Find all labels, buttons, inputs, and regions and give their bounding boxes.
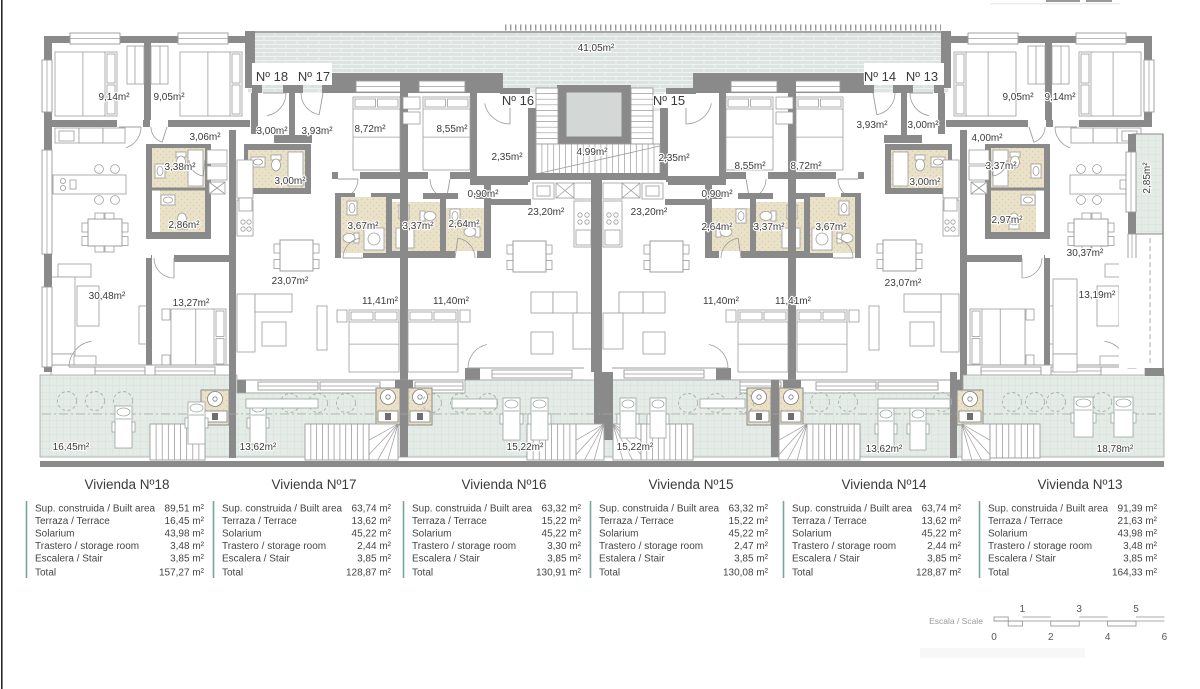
svg-text:11,41m²: 11,41m² [775,296,812,307]
svg-text:Solarium: Solarium [35,529,74,540]
svg-text:Terraza / Terrace: Terraza / Terrace [599,516,674,527]
svg-text:Trastero / storage room: Trastero / storage room [599,541,703,552]
svg-text:Total: Total [412,568,433,579]
svg-text:Sup. construida / Built area: Sup. construida / Built area [792,504,913,515]
svg-text:Sup. construida / Built area: Sup. construida / Built area [35,504,156,515]
svg-text:91,39 m²: 91,39 m² [1118,504,1158,515]
svg-text:9,05m²: 9,05m² [1002,92,1034,103]
svg-text:9,14m²: 9,14m² [98,92,130,103]
svg-text:3,85 m²: 3,85 m² [170,554,205,565]
svg-text:Vivienda Nº15: Vivienda Nº15 [649,477,734,492]
svg-text:15,22m²: 15,22m² [617,442,654,453]
svg-text:130,08 m²: 130,08 m² [723,568,769,579]
svg-text:2,47 m²: 2,47 m² [734,541,769,552]
svg-text:Solarium: Solarium [222,529,261,540]
svg-text:3,48 m²: 3,48 m² [1123,541,1158,552]
svg-text:8,55m²: 8,55m² [436,124,468,135]
svg-text:Total: Total [599,568,620,579]
svg-text:11,40m²: 11,40m² [703,296,740,307]
svg-text:13,27m²: 13,27m² [173,298,210,309]
svg-text:Sup. construida / Built area: Sup. construida / Built area [222,504,343,515]
svg-text:0,90m²: 0,90m² [467,189,499,200]
svg-text:Terraza / Terrace: Terraza / Terrace [35,516,110,527]
svg-text:15,22 m²: 15,22 m² [542,516,582,527]
svg-text:3,30 m²: 3,30 m² [547,541,582,552]
svg-text:Sup. construida / Built area: Sup. construida / Built area [412,504,533,515]
svg-text:3,38m²: 3,38m² [164,162,196,173]
svg-text:Solarium: Solarium [412,529,451,540]
svg-text:8,55m²: 8,55m² [734,161,766,172]
svg-text:45,22 m²: 45,22 m² [352,529,392,540]
svg-text:2,44 m²: 2,44 m² [357,541,392,552]
svg-text:Terraza / Terrace: Terraza / Terrace [222,516,297,527]
svg-text:13,62m²: 13,62m² [240,442,277,453]
svg-text:41,05m²: 41,05m² [578,43,615,54]
svg-text:Escalera / Stair: Escalera / Stair [792,554,860,565]
svg-text:23,07m²: 23,07m² [272,276,309,287]
svg-text:23,07m²: 23,07m² [885,278,922,289]
svg-text:128,87 m²: 128,87 m² [916,568,962,579]
svg-text:130,91 m²: 130,91 m² [536,568,582,579]
svg-text:21,63 m²: 21,63 m² [1118,516,1158,527]
svg-text:23,20m²: 23,20m² [631,207,668,218]
svg-text:9,14m²: 9,14m² [1044,92,1076,103]
svg-text:11,40m²: 11,40m² [433,296,470,307]
svg-text:Total: Total [222,568,243,579]
svg-text:3,00m²: 3,00m² [909,177,941,188]
svg-text:3: 3 [1076,604,1082,615]
svg-text:63,32 m²: 63,32 m² [729,504,769,515]
svg-text:0: 0 [991,632,997,643]
svg-text:Terraza / Terrace: Terraza / Terrace [988,516,1063,527]
svg-text:Trastero / storage room: Trastero / storage room [222,541,326,552]
svg-text:45,22 m²: 45,22 m² [542,529,582,540]
svg-text:3,85 m²: 3,85 m² [1123,554,1158,565]
svg-text:5: 5 [1133,604,1139,615]
svg-text:3,00m²: 3,00m² [907,120,939,131]
svg-text:8,72m²: 8,72m² [354,124,386,135]
svg-text:2,64m²: 2,64m² [448,219,480,230]
svg-text:45,22 m²: 45,22 m² [729,529,769,540]
svg-text:3,67m²: 3,67m² [815,222,847,233]
svg-text:3,37m²: 3,37m² [402,221,434,232]
svg-text:Solarium: Solarium [988,529,1027,540]
svg-text:13,62 m²: 13,62 m² [922,516,962,527]
svg-text:164,33 m²: 164,33 m² [1112,568,1158,579]
svg-text:3,85 m²: 3,85 m² [547,554,582,565]
svg-text:Nº 18: Nº 18 [256,69,288,84]
svg-text:Nº 13: Nº 13 [906,69,938,84]
svg-text:Vivienda Nº17: Vivienda Nº17 [272,477,357,492]
svg-text:Vivienda Nº13: Vivienda Nº13 [1038,477,1123,492]
svg-text:9,05m²: 9,05m² [153,92,185,103]
svg-text:Nº 15: Nº 15 [653,93,685,108]
svg-text:13,62 m²: 13,62 m² [352,516,392,527]
svg-text:16,45m²: 16,45m² [53,442,90,453]
svg-text:3,00m²: 3,00m² [274,176,306,187]
svg-text:Vivienda Nº16: Vivienda Nº16 [462,477,547,492]
svg-text:8,72m²: 8,72m² [790,161,822,172]
svg-text:Escalera / Stair: Escalera / Stair [35,554,103,565]
svg-text:13,19m²: 13,19m² [1079,290,1116,301]
svg-text:3,48 m²: 3,48 m² [170,541,205,552]
svg-text:15,22m²: 15,22m² [507,442,544,453]
svg-text:Sup. construida / Built area: Sup. construida / Built area [599,504,720,515]
svg-text:3,37m²: 3,37m² [753,222,785,233]
svg-text:Total: Total [35,568,56,579]
svg-text:Vivienda Nº14: Vivienda Nº14 [842,477,927,492]
svg-text:Terraza / Terrace: Terraza / Terrace [792,516,867,527]
svg-text:1: 1 [1020,604,1026,615]
svg-text:89,51 m²: 89,51 m² [165,504,205,515]
svg-text:Escalera / Stair: Escalera / Stair [988,554,1056,565]
svg-text:Nº 17: Nº 17 [298,69,330,84]
svg-text:63,74 m²: 63,74 m² [352,504,392,515]
svg-text:3,06m²: 3,06m² [189,132,221,143]
svg-text:2,86m²: 2,86m² [168,220,200,231]
svg-text:Escalera / Stair: Escalera / Stair [222,554,290,565]
svg-text:11,41m²: 11,41m² [362,296,399,307]
svg-text:Total: Total [988,568,1009,579]
svg-text:30,37m²: 30,37m² [1067,248,1104,259]
svg-text:Escalera / Stair: Escalera / Stair [412,554,480,565]
svg-text:Terraza / Terrace: Terraza / Terrace [412,516,487,527]
svg-text:4: 4 [1105,632,1111,643]
svg-text:2,64m²: 2,64m² [701,222,733,233]
svg-text:4,00m²: 4,00m² [971,133,1003,144]
svg-text:0,90m²: 0,90m² [701,189,733,200]
svg-text:128,87 m²: 128,87 m² [346,568,392,579]
svg-text:2,35m²: 2,35m² [658,153,690,164]
svg-text:23,20m²: 23,20m² [528,207,565,218]
svg-text:Trastero / storage room: Trastero / storage room [412,541,516,552]
svg-text:Sup. construida / Built area: Sup. construida / Built area [988,504,1109,515]
svg-text:Vivienda Nº18: Vivienda Nº18 [85,477,170,492]
svg-text:2: 2 [1048,632,1054,643]
svg-text:Total: Total [792,568,813,579]
svg-text:3,85 m²: 3,85 m² [927,554,962,565]
svg-text:3,67m²: 3,67m² [347,221,379,232]
svg-text:15,22 m²: 15,22 m² [729,516,769,527]
svg-text:Escala / Scale: Escala / Scale [929,616,983,626]
svg-text:30,48m²: 30,48m² [89,291,126,302]
svg-text:Trastero / storage room: Trastero / storage room [988,541,1092,552]
svg-text:2,44 m²: 2,44 m² [927,541,962,552]
svg-text:Solarium: Solarium [599,529,638,540]
svg-text:Estalera / Stair: Estalera / Stair [599,554,665,565]
svg-text:4,99m²: 4,99m² [576,147,608,158]
svg-text:6: 6 [1162,632,1168,643]
svg-text:43,98 m²: 43,98 m² [165,529,205,540]
svg-text:Trastero / storage room: Trastero / storage room [35,541,139,552]
svg-text:18,78m²: 18,78m² [1097,444,1134,455]
svg-text:157,27 m²: 157,27 m² [159,568,205,579]
svg-text:63,32 m²: 63,32 m² [542,504,582,515]
svg-text:3,93m²: 3,93m² [301,126,333,137]
svg-text:43,98 m²: 43,98 m² [1118,529,1158,540]
svg-text:3,93m²: 3,93m² [856,120,888,131]
svg-text:2,35m²: 2,35m² [491,152,523,163]
svg-text:16,45 m²: 16,45 m² [165,516,205,527]
svg-text:3,00m²: 3,00m² [256,126,288,137]
svg-text:3,37m²: 3,37m² [985,161,1017,172]
svg-text:63,74 m²: 63,74 m² [922,504,962,515]
svg-text:Nº 14: Nº 14 [864,69,896,84]
svg-text:Trastero / storage room: Trastero / storage room [792,541,896,552]
svg-text:2,85m²: 2,85m² [1142,162,1153,194]
svg-text:Solarium: Solarium [792,529,831,540]
svg-text:45,22 m²: 45,22 m² [922,529,962,540]
svg-text:2,97m²: 2,97m² [991,215,1023,226]
svg-text:3,85 m²: 3,85 m² [357,554,392,565]
svg-text:13,62m²: 13,62m² [866,444,903,455]
svg-text:3,85 m²: 3,85 m² [734,554,769,565]
svg-text:Nº 16: Nº 16 [502,93,534,108]
